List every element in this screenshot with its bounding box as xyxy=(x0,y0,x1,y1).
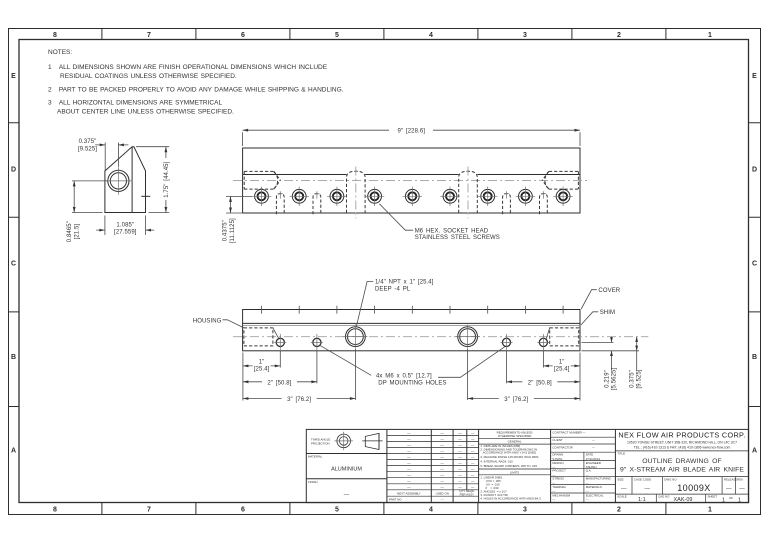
svg-text:C: C xyxy=(752,260,757,267)
svg-text:NOTES:: NOTES: xyxy=(48,49,72,56)
svg-text:2" [50.8]: 2" [50.8] xyxy=(267,380,291,386)
svg-text:—: — xyxy=(471,473,475,477)
svg-text:—: — xyxy=(471,437,475,441)
svg-text:SHEET: SHEET xyxy=(708,495,718,499)
svg-text:[21.5]: [21.5] xyxy=(74,224,80,240)
svg-text:9" [228.6]: 9" [228.6] xyxy=(398,129,426,135)
svg-text:—: — xyxy=(471,479,475,483)
svg-text:TITLE: TITLE xyxy=(617,452,625,456)
svg-text:0.8465": 0.8465" xyxy=(67,221,73,242)
svg-text:DP MOUNTING HOLES: DP MOUNTING HOLES xyxy=(378,380,446,386)
svg-text:1.085": 1.085" xyxy=(116,222,134,228)
svg-text:HOUSING: HOUSING xyxy=(193,318,222,324)
svg-text:MATERIAL: MATERIAL xyxy=(308,455,323,459)
svg-text:USED ON: USED ON xyxy=(436,492,449,496)
svg-text:—: — xyxy=(586,489,589,493)
svg-text:A: A xyxy=(752,448,757,455)
svg-text:[5.5625]: [5.5625] xyxy=(612,368,618,391)
svg-text:—: — xyxy=(552,489,555,493)
svg-text:5: 5 xyxy=(335,507,339,514)
svg-text:0.375": 0.375" xyxy=(629,370,635,388)
svg-text:1: 1 xyxy=(708,507,712,514)
svg-text:DEEP -4 PL: DEEP -4 PL xyxy=(375,286,411,292)
svg-text:1 ALL DIMENSIONS SHOWN ARE F: 1 ALL DIMENSIONS SHOWN ARE FINISH OPERAT… xyxy=(48,64,328,71)
svg-text:1: 1 xyxy=(708,32,712,39)
svg-text:OTHERWISE SPECIFIED: OTHERWISE SPECIFIED xyxy=(498,434,532,438)
svg-text:1/4" NPT x 1" [25.4]: 1/4" NPT x 1" [25.4] xyxy=(375,280,434,286)
svg-text:8: 8 xyxy=(53,32,57,39)
svg-text:DWG NO: DWG NO xyxy=(664,478,677,482)
svg-text:[9.525]: [9.525] xyxy=(78,146,97,152)
svg-text:6: 6 xyxy=(241,32,245,39)
svg-text:4. HOLES IN ACCORDANCE WITH AN: 4. HOLES IN ACCORDANCE WITH ANSI B4.3 xyxy=(480,497,541,501)
svg-text:A: A xyxy=(11,448,16,455)
svg-text:ALUMINIUM: ALUMINIUM xyxy=(331,467,362,473)
svg-text:REV: REV xyxy=(737,478,743,482)
svg-text:D: D xyxy=(752,167,757,174)
svg-text:CAGE CODE: CAGE CODE xyxy=(634,478,651,482)
svg-text:2 PART TO BE PACKED PROPERLY: 2 PART TO BE PACKED PROPERLY TO AVOID AN… xyxy=(48,87,344,94)
svg-text:—: — xyxy=(441,485,445,489)
svg-text:MANUFACTURING: MANUFACTURING xyxy=(586,477,612,481)
svg-text:1: 1 xyxy=(738,497,741,503)
svg-text:—: — xyxy=(739,486,745,492)
svg-text:—: — xyxy=(471,461,475,465)
svg-text:—: — xyxy=(441,449,445,453)
svg-text:NEX FLOW AIR PRODUCTS CORP.: NEX FLOW AIR PRODUCTS CORP. xyxy=(618,430,745,439)
svg-text:—: — xyxy=(621,486,627,492)
svg-text:E: E xyxy=(11,73,16,80)
svg-text:—: — xyxy=(441,473,445,477)
svg-text:[25.4]: [25.4] xyxy=(554,367,570,373)
svg-text:6: 6 xyxy=(241,507,245,514)
svg-text:—: — xyxy=(441,455,445,459)
svg-text:TEL.: (416) 410-1313 & FAX: (4: TEL.: (416) 410-1313 & FAX: (416) 410-18… xyxy=(634,446,731,450)
svg-text:[9.525]: [9.525] xyxy=(637,369,643,388)
svg-text:—: — xyxy=(552,498,555,502)
svg-text:E: E xyxy=(752,73,757,80)
svg-text:—: — xyxy=(344,492,350,498)
svg-text:LIMITS: LIMITS xyxy=(510,470,519,474)
svg-text:SHIM: SHIM xyxy=(600,310,615,316)
svg-text:C: C xyxy=(11,260,16,267)
svg-text:—: — xyxy=(592,445,595,449)
svg-text:—: — xyxy=(471,467,475,471)
svg-text:—: — xyxy=(471,449,475,453)
svg-text:10009X: 10009X xyxy=(677,483,710,493)
svg-text:OF: OF xyxy=(729,496,733,500)
svg-text:PROJECTION: PROJECTION xyxy=(311,441,330,445)
svg-text:PART NO: PART NO xyxy=(389,498,402,502)
svg-text:1: 1 xyxy=(722,497,725,503)
svg-text:1.75" [44.45]: 1.75" [44.45] xyxy=(164,161,170,197)
svg-text:[27.559]: [27.559] xyxy=(114,230,137,236)
svg-text:0.375": 0.375" xyxy=(79,139,97,145)
svg-text:7: 7 xyxy=(147,32,151,39)
svg-text:RESIDUAL COATINGS UNLESS OTHER: RESIDUAL COATINGS UNLESS OTHERWISE SPECI… xyxy=(60,73,237,80)
svg-text:[25.4]: [25.4] xyxy=(254,367,270,373)
svg-text:4. INTERNAL RADII .015: 4. INTERNAL RADII .015 xyxy=(480,460,513,464)
svg-text:3. MACHINE FINISH 125 MICRO IN: 3. MACHINE FINISH 125 MICRO INCH RMS xyxy=(480,455,538,459)
svg-text:RELEASE: RELEASE xyxy=(724,478,737,482)
svg-text:0.4375": 0.4375" xyxy=(223,220,229,241)
svg-text:3: 3 xyxy=(523,32,527,39)
svg-text:10520 YONGE STREET, UNIT 35B-2: 10520 YONGE STREET, UNIT 35B-220, RICHMO… xyxy=(627,441,737,445)
svg-text:—: — xyxy=(471,455,475,459)
svg-text:CONTRACT NUMBER —: CONTRACT NUMBER — xyxy=(552,430,585,434)
svg-text:—: — xyxy=(441,443,445,447)
svg-text:ACCORDANCE WITH ANSI Y14.5 [19: ACCORDANCE WITH ANSI Y14.5 [1982] xyxy=(480,451,536,455)
svg-text:4: 4 xyxy=(429,32,433,39)
svg-text:CAD NO: CAD NO xyxy=(658,495,670,499)
svg-text:SCALE: SCALE xyxy=(617,495,627,499)
svg-text:9" X-STREAM AIR BLADE AIR KNIF: 9" X-STREAM AIR BLADE AIR KNIFE xyxy=(620,467,744,474)
svg-text:4x M6 x 0.5" [12.7]: 4x M6 x 0.5" [12.7] xyxy=(376,374,432,380)
svg-text:2" [50.8]: 2" [50.8] xyxy=(528,380,552,386)
svg-text:—: — xyxy=(441,467,445,471)
svg-text:STAINLESS STEEL SCREWS: STAINLESS STEEL SCREWS xyxy=(415,235,500,241)
svg-text:XAK-09: XAK-09 xyxy=(674,497,693,503)
svg-text:3" [76.2]: 3" [76.2] xyxy=(504,397,528,403)
svg-text:7: 7 xyxy=(147,507,151,514)
svg-text:—: — xyxy=(644,486,650,492)
svg-text:COVER: COVER xyxy=(598,288,620,294)
svg-text:8: 8 xyxy=(53,507,57,514)
svg-text:OUTLINE DRAWING OF: OUTLINE DRAWING OF xyxy=(642,458,721,465)
svg-text:5: 5 xyxy=(335,32,339,39)
svg-text:CLIENT: CLIENT xyxy=(552,438,563,442)
svg-text:—: — xyxy=(586,498,589,502)
svg-text:PER ASSY: PER ASSY xyxy=(460,492,474,496)
svg-text:FINISH: FINISH xyxy=(308,480,317,484)
svg-text:M6 HEX. SOCKET HEAD: M6 HEX. SOCKET HEAD xyxy=(415,228,489,234)
svg-text:—: — xyxy=(441,431,445,435)
svg-text:2: 2 xyxy=(617,507,621,514)
svg-text:—: — xyxy=(441,437,445,441)
svg-text:—: — xyxy=(441,461,445,465)
svg-text:B: B xyxy=(752,354,757,361)
svg-text:SIZE: SIZE xyxy=(617,478,623,482)
svg-text:3" [76.2]: 3" [76.2] xyxy=(287,397,311,403)
svg-text:0.219": 0.219" xyxy=(604,370,610,388)
svg-text:—: — xyxy=(441,498,444,502)
svg-text:D: D xyxy=(11,167,16,174)
svg-text:2: 2 xyxy=(617,32,621,39)
svg-text:—: — xyxy=(471,443,475,447)
svg-text:—: — xyxy=(471,431,475,435)
svg-text:CONTRACTOR: CONTRACTOR xyxy=(552,445,572,449)
svg-text:3 ALL HORIZONTAL DIMENSIONS: 3 ALL HORIZONTAL DIMENSIONS ARE SYMMETRI… xyxy=(48,100,222,107)
svg-text:3: 3 xyxy=(523,507,527,514)
svg-text:—: — xyxy=(592,438,595,442)
svg-text:1:1: 1:1 xyxy=(638,497,646,503)
svg-text:5. BREAK SHARP CORNERS .005 TO: 5. BREAK SHARP CORNERS .005 TO .015 xyxy=(480,464,537,468)
svg-text:B: B xyxy=(11,354,16,361)
svg-text:[11.1125]: [11.1125] xyxy=(230,218,236,243)
svg-text:ABOUT CENTER LINE UNLESS OTHER: ABOUT CENTER LINE UNLESS OTHERWISE SPECI… xyxy=(57,109,234,116)
svg-text:—: — xyxy=(726,486,732,492)
svg-text:4: 4 xyxy=(429,507,433,514)
svg-text:NEXT ASSEMBLY: NEXT ASSEMBLY xyxy=(397,492,421,496)
svg-text:—: — xyxy=(441,479,445,483)
